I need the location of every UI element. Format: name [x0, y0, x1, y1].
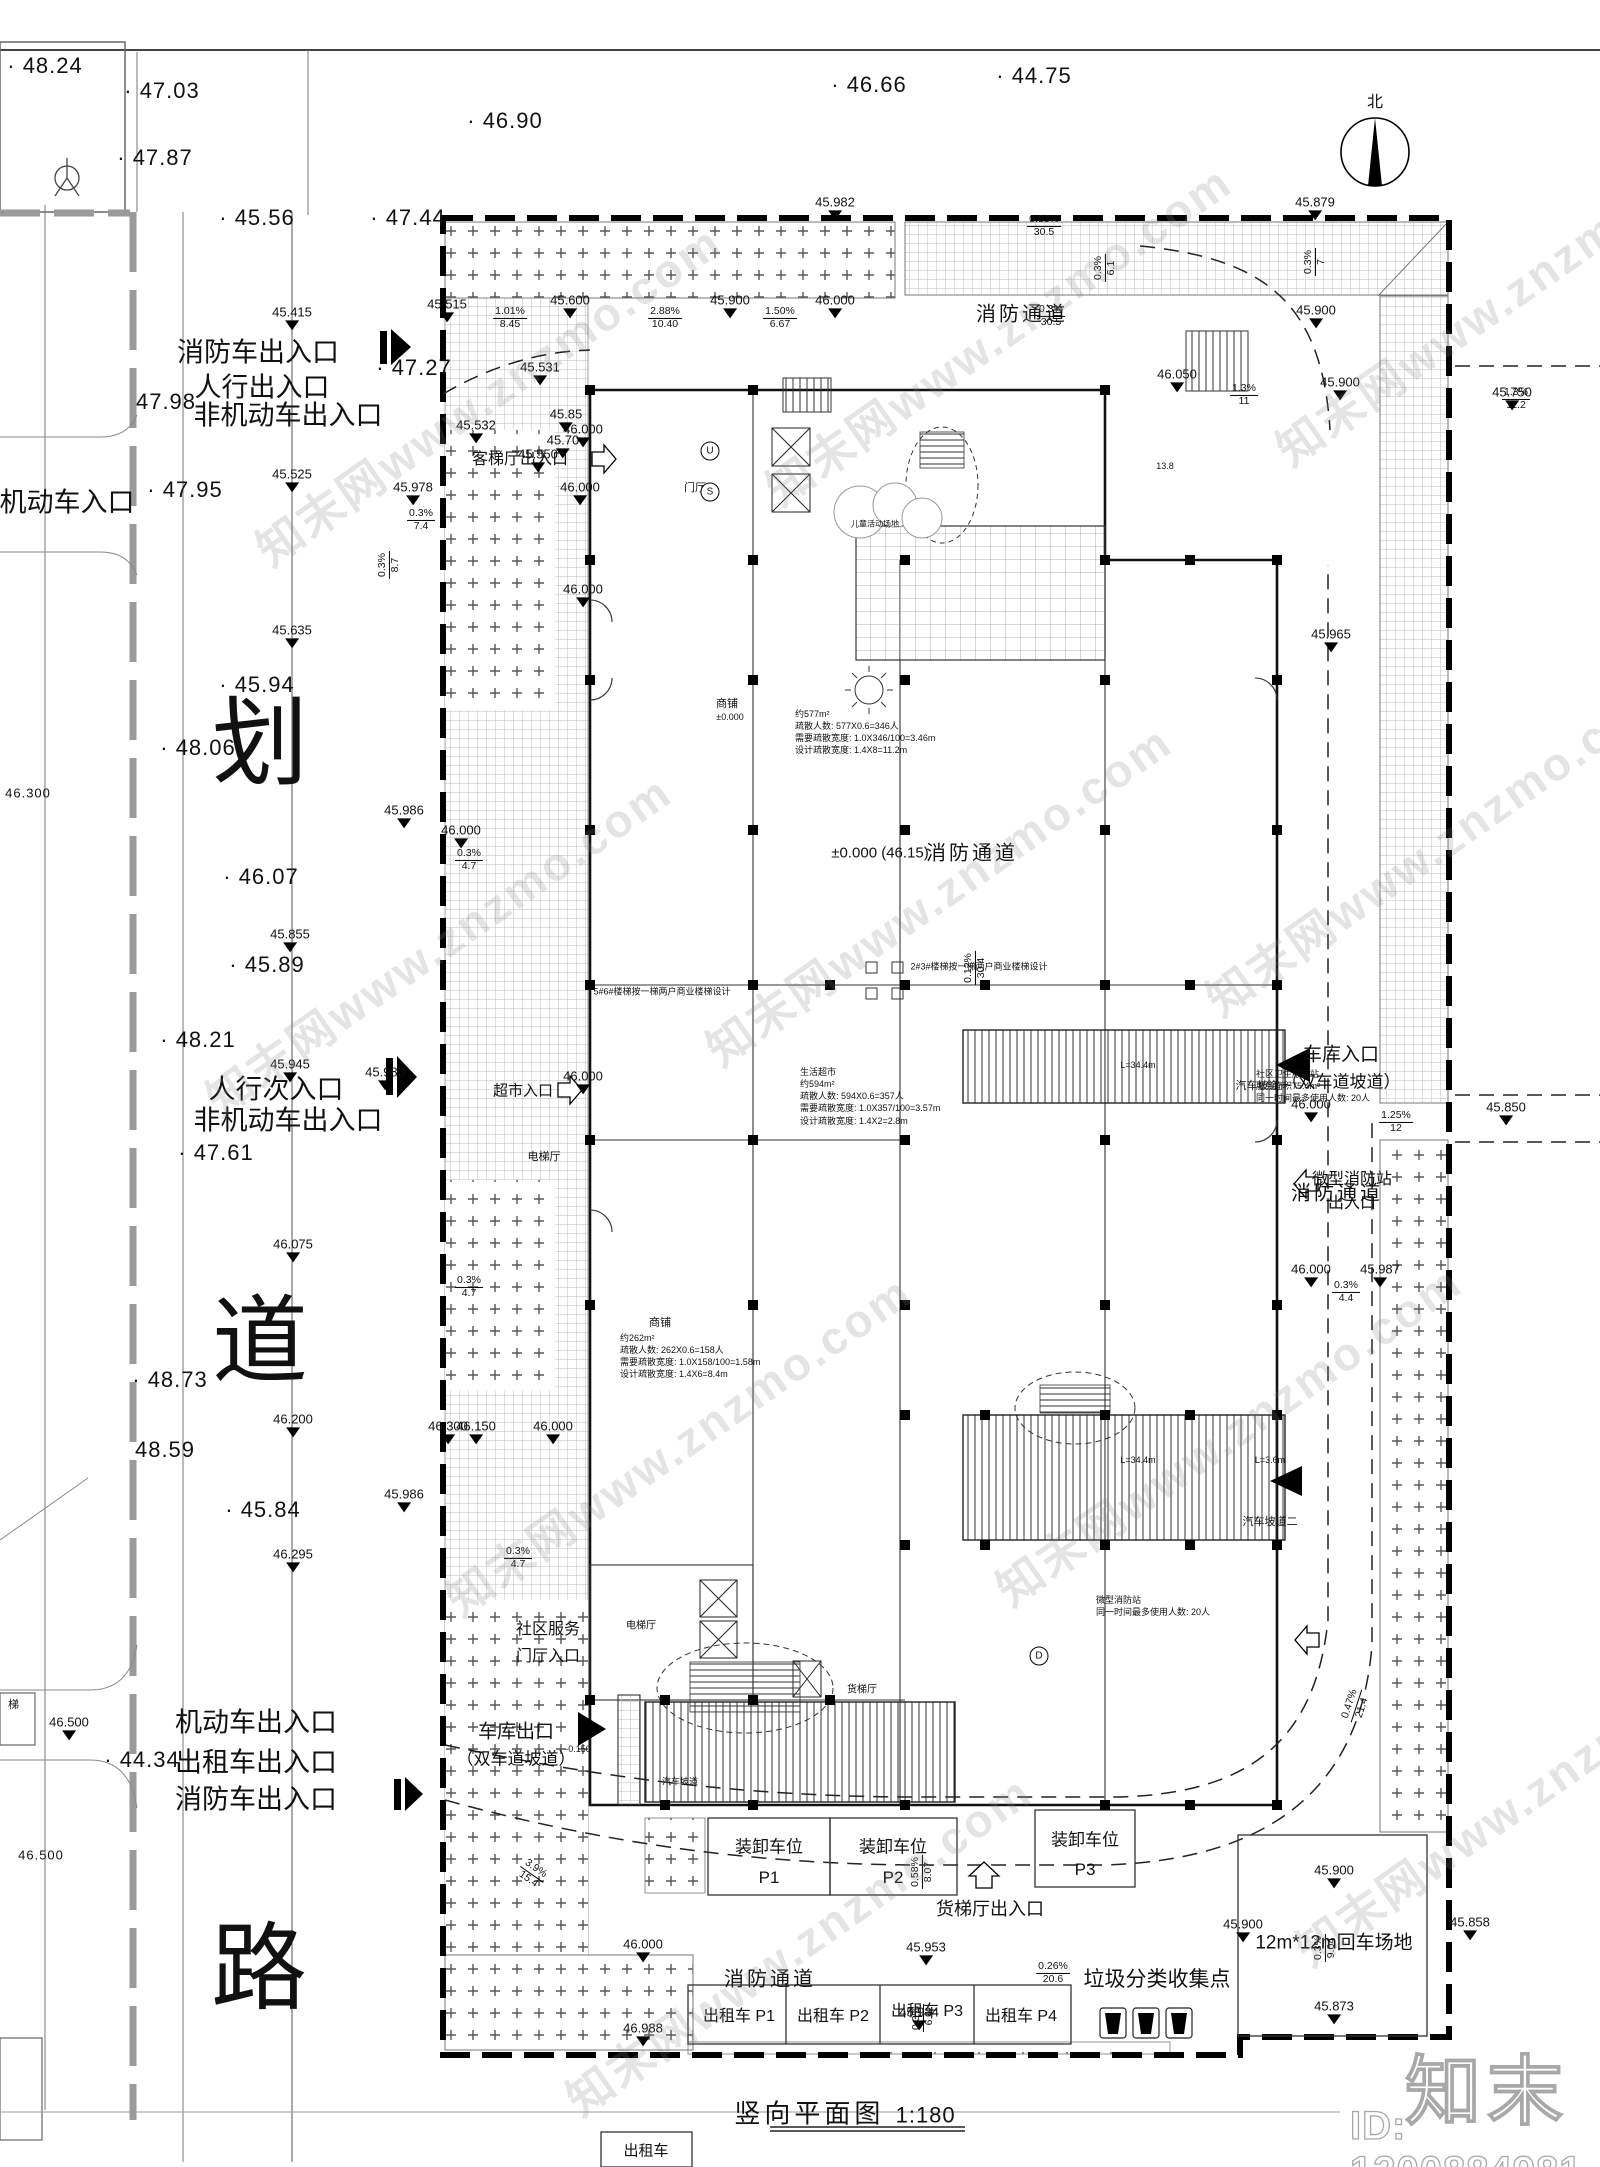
room-label: 客梯厅出入口 — [472, 445, 568, 469]
level-value: 45.900 — [710, 293, 750, 307]
level-value: 45.850 — [1486, 1100, 1526, 1114]
level-marker: 45.978 — [393, 480, 433, 505]
level-triangle-icon — [1327, 1878, 1341, 1888]
level-triangle-icon — [283, 942, 297, 952]
room-label: 垃圾分类收集点 — [1084, 1963, 1231, 1993]
level-marker: 45.953 — [906, 1940, 946, 1965]
level-triangle-icon — [1499, 1115, 1513, 1125]
taxi-bay-label: 出租车 P1 — [703, 2002, 775, 2026]
grid-axis-bubble: U — [701, 442, 720, 461]
slope-length: 8.45 — [500, 318, 520, 330]
slope-length: 6.1 — [1105, 261, 1117, 276]
level-marker: 45.980 — [365, 1065, 405, 1090]
note-line: 约577m² — [795, 708, 935, 720]
level-marker: 45.900 — [1314, 1863, 1354, 1888]
level-triangle-icon — [286, 1252, 300, 1262]
level-triangle-icon — [573, 495, 587, 505]
note-line: 设计疏散宽度: 1.4X8=11.2m — [795, 744, 935, 756]
spot-elevation: · 47.95 — [147, 477, 223, 503]
document-id: ID: 1200884981 — [1350, 2104, 1600, 2167]
spot-elevation: · 48.24 — [7, 53, 83, 79]
level-triangle-icon — [533, 375, 547, 385]
fire-lane-label: 消防通道 — [724, 1963, 816, 1992]
loading-bay-label: 装卸车位 — [859, 1833, 927, 1858]
room-label: L=3.6m — [1255, 1455, 1285, 1465]
spot-elevation: · 48.73 — [132, 1367, 208, 1393]
slope-length: 7 — [1315, 259, 1327, 265]
slope-annotation: 0.3%4.7 — [455, 1275, 483, 1299]
room-label: 社区服务 — [516, 1615, 580, 1639]
room-label: -0.150 — [565, 1744, 591, 1754]
level-triangle-icon — [469, 1434, 483, 1444]
room-label: ±0.000 — [716, 712, 743, 722]
note-line: 需要疏散宽度: 1.0X158/100=1.58m — [620, 1356, 760, 1368]
level-value: 46.000 — [563, 1069, 603, 1083]
room-label: 车库入口 — [1303, 1040, 1379, 1067]
slope-length: 8.7 — [389, 558, 401, 573]
level-marker: 45.900 — [710, 293, 750, 318]
level-marker: 45.900 — [1296, 303, 1336, 328]
note-line: 需要疏散宽度: 1.0X357/100=3.57m — [800, 1102, 940, 1114]
level-value: 45.900 — [1314, 1863, 1354, 1877]
room-label: 车库出口 — [478, 1717, 554, 1744]
level-triangle-icon — [1333, 390, 1347, 400]
loading-bay-code: P3 — [1075, 1860, 1096, 1880]
level-value: 45.858 — [1450, 1915, 1490, 1929]
level-value: 46.000 — [815, 293, 855, 307]
level-marker: 46.000 — [623, 1937, 663, 1962]
entrance-label: 非机动车出入口 — [194, 394, 383, 433]
note-line: 疏散人数: 262X0.6=158人 — [620, 1344, 760, 1356]
level-marker: 46.988 — [623, 2021, 663, 2046]
spot-elevation: · 45.89 — [229, 952, 305, 978]
note-block: 社区卫生服务站服务面积75.4m²同一时间最多使用人数: 20人 — [1256, 1068, 1370, 1104]
level-triangle-icon — [1309, 318, 1323, 328]
level-triangle-icon — [285, 638, 299, 648]
loading-bay-label: 装卸车位 — [735, 1833, 803, 1858]
level-marker: 46.000 — [563, 582, 603, 607]
level-value: 45.900 — [1296, 303, 1336, 317]
level-value: 45.980 — [365, 1065, 405, 1079]
level-value: 45.953 — [906, 1940, 946, 1954]
level-triangle-icon — [576, 1084, 590, 1094]
level-triangle-icon — [440, 312, 454, 322]
level-marker: 45.858 — [1450, 1915, 1490, 1940]
slope-annotation: 1.3%11 — [1230, 383, 1258, 407]
road-name-char: 道 — [212, 1264, 308, 1403]
slope-length: 8.07 — [922, 1862, 934, 1882]
level-value: 46.000 — [623, 1937, 663, 1951]
level-value: 45.855 — [270, 927, 310, 941]
room-label: ±0.000 (46.15) — [831, 845, 928, 862]
slope-annotation: 3.9%15.4 — [514, 1856, 551, 1892]
spot-elevation: · 44.75 — [996, 63, 1072, 89]
level-value: 45.986 — [384, 803, 424, 817]
slope-length: 7.4 — [414, 520, 429, 532]
watermark-text: 知末网www.znzmo.com — [981, 1247, 1473, 1619]
level-marker: 45.987 — [1360, 1262, 1400, 1287]
slope-length: 20.6 — [1043, 1973, 1063, 1985]
level-triangle-icon — [1324, 642, 1338, 652]
slope-length: 4.7 — [511, 1558, 526, 1570]
level-marker: 45.635 — [272, 623, 312, 648]
spot-elevation: 46.500 — [18, 1848, 64, 1863]
entrance-label: 出租车出入口 — [175, 1741, 337, 1780]
slope-annotation: 1.01%8.45 — [493, 306, 527, 330]
level-value: 46.000 — [560, 480, 600, 494]
fire-lane-label: 消防通道 — [926, 837, 1018, 866]
slope-annotation: 0.3%7.4 — [407, 508, 435, 532]
room-label: （双车道坡道） — [457, 1745, 576, 1770]
note-line: 疏散人数: 594X0.6=357人 — [800, 1090, 940, 1102]
slope-length: 4.4 — [1339, 1292, 1354, 1304]
note-line: 微型消防站 — [1096, 1594, 1210, 1606]
note-line: 设计疏散宽度: 1.4X6=8.4m — [620, 1368, 760, 1380]
level-marker: 45.986 — [384, 803, 424, 828]
level-value: 45.986 — [384, 1487, 424, 1501]
level-value: 45.873 — [1314, 1999, 1354, 2013]
level-value: 45.987 — [1360, 1262, 1400, 1276]
road-name-char: 划 — [212, 666, 308, 805]
level-triangle-icon — [469, 433, 483, 443]
level-triangle-icon — [723, 308, 737, 318]
spot-elevation: 46.300 — [5, 786, 51, 801]
spot-elevation: · 46.07 — [223, 864, 299, 890]
loading-bay-code: P2 — [883, 1868, 904, 1888]
level-marker: 46.000 — [533, 1419, 573, 1444]
level-value: 45.600 — [550, 293, 590, 307]
note-line: 同一时间最多使用人数: 20人 — [1096, 1606, 1210, 1618]
room-label: 汽车坡道二 — [1243, 1513, 1298, 1529]
watermark-text: 知末网www.znzmo.com — [1281, 1607, 1600, 1979]
note-block: 生活超市约594m²疏散人数: 594X0.6=357人需要疏散宽度: 1.0X… — [800, 1066, 940, 1127]
level-triangle-icon — [563, 308, 577, 318]
room-label: 2#3#楼梯按一梯两户商业楼梯设计 — [910, 960, 1047, 973]
level-triangle-icon — [1236, 1932, 1250, 1942]
grid-axis-bubble: S — [701, 483, 720, 502]
level-triangle-icon — [546, 1434, 560, 1444]
entrance-label: 机动车入口 — [0, 481, 135, 520]
slope-length: 11.2 — [1506, 399, 1526, 411]
room-label: 汽车坡道 — [662, 1775, 698, 1788]
level-triangle-icon — [576, 437, 590, 447]
level-triangle-icon — [919, 1955, 933, 1965]
slope-annotation: 1.50%6.67 — [763, 306, 797, 330]
spot-elevation: · 47.27 — [376, 355, 452, 381]
room-label: 5#6#楼梯按一梯两户商业楼梯设计 — [593, 985, 730, 998]
level-value: 46.200 — [273, 1412, 313, 1426]
level-triangle-icon — [1373, 1277, 1387, 1287]
level-triangle-icon — [1304, 1112, 1318, 1122]
spot-elevation: · 48.21 — [160, 1027, 236, 1053]
entrance-label: 消防车出入口 — [177, 331, 339, 370]
loading-bay-code: P1 — [759, 1868, 780, 1888]
spot-elevation: 梯 — [8, 1696, 20, 1712]
taxi-bay-label: 出租车 P3 — [891, 1997, 963, 2021]
slope-annotation: 0.3%4.4 — [1332, 1280, 1360, 1304]
level-marker: 45.986 — [384, 1487, 424, 1512]
level-value: 46.000 — [563, 422, 603, 436]
level-value: 46.500 — [49, 1715, 89, 1729]
entrance-label: 消防车出入口 — [175, 1778, 337, 1817]
level-value: 45.515 — [427, 297, 467, 311]
level-value: 45.532 — [456, 418, 496, 432]
level-value: 45.525 — [272, 467, 312, 481]
level-triangle-icon — [286, 1562, 300, 1572]
slope-annotation: 0.33%30.5 — [1027, 214, 1061, 238]
slope-annotation: 0.3%7 — [1303, 248, 1327, 276]
room-label: 商铺 — [716, 695, 738, 711]
room-label: 货梯厅出入口 — [936, 1895, 1044, 1921]
note-line: 设计疏散宽度: 1.4X2=2.8m — [800, 1115, 940, 1127]
level-triangle-icon — [1327, 2014, 1341, 2024]
level-value: 45.978 — [393, 480, 433, 494]
level-triangle-icon — [1304, 1277, 1318, 1287]
level-value: 45.85 — [550, 407, 583, 421]
note-block: 约577m²疏散人数: 577X0.6=346人需要疏散宽度: 1.0X346/… — [795, 708, 935, 757]
level-marker: 45.879 — [1295, 195, 1335, 220]
level-marker: 46.500 — [49, 1715, 89, 1740]
drawing-title: 竖向平面图 1:180 — [734, 2094, 955, 2131]
level-value: 46.150 — [456, 1419, 496, 1433]
level-triangle-icon — [285, 482, 299, 492]
room-label: 门厅入口 — [516, 1642, 580, 1666]
watermark-text: 知末网www.znzmo.com — [431, 1257, 923, 1629]
level-marker: 46.000 — [1291, 1262, 1331, 1287]
taxi-bay-label: 出租车 P2 — [797, 2002, 869, 2026]
room-label: L=34.4m — [1120, 1060, 1155, 1070]
fire-lane-label: 消防通道 — [976, 298, 1068, 327]
level-marker: 46.150 — [456, 1419, 496, 1444]
level-value: 45.900 — [1320, 375, 1360, 389]
level-value: 46.050 — [1157, 367, 1197, 381]
level-marker: 45.850 — [1486, 1100, 1526, 1125]
grid-axis-bubble: D — [1030, 1647, 1049, 1666]
watermark-text: 知末网www.znzmo.com — [1191, 657, 1600, 1029]
level-value: 46.000 — [533, 1419, 573, 1433]
level-triangle-icon — [636, 1952, 650, 1962]
level-value: 45.635 — [272, 623, 312, 637]
slope-length: 4.7 — [462, 1287, 477, 1299]
level-value: 45.879 — [1295, 195, 1335, 209]
level-value: 46.000 — [563, 582, 603, 596]
note-line: 同一时间最多使用人数: 20人 — [1256, 1092, 1370, 1104]
level-triangle-icon — [285, 320, 299, 330]
level-marker: 45.525 — [272, 467, 312, 492]
level-marker: 45.600 — [550, 293, 590, 318]
level-marker: 46.295 — [273, 1547, 313, 1572]
level-value: 46.075 — [273, 1237, 313, 1251]
slope-annotation: 0.3%8.7 — [377, 551, 401, 579]
entrance-label: 机动车出入口 — [175, 1701, 337, 1740]
level-marker: 46.075 — [273, 1237, 313, 1262]
slope-annotation: 0.3%6.1 — [1093, 254, 1117, 282]
level-marker: 45.531 — [520, 360, 560, 385]
level-triangle-icon — [828, 210, 842, 220]
level-value: 45.965 — [1311, 627, 1351, 641]
level-triangle-icon — [286, 1427, 300, 1437]
level-value: 46.000 — [441, 823, 481, 837]
road-name-char: 路 — [211, 1891, 307, 2030]
note-block: 约262m²疏散人数: 262X0.6=158人需要疏散宽度: 1.0X158/… — [620, 1332, 760, 1381]
spot-elevation: · 47.61 — [178, 1140, 254, 1166]
slope-length: 10.40 — [652, 318, 678, 330]
room-label: 12m*12m回车场地 — [1255, 1928, 1412, 1955]
title-scale: 1:180 — [896, 2103, 956, 2128]
slope-length: 30.5 — [1034, 226, 1054, 238]
room-label: 商铺 — [649, 1314, 671, 1330]
taxi-stand-label: 出租车 — [623, 2140, 668, 2161]
level-triangle-icon — [378, 1080, 392, 1090]
level-marker: 46.200 — [273, 1412, 313, 1437]
level-marker: 46.000 — [563, 1069, 603, 1094]
title-text: 竖向平面图 — [734, 2099, 884, 2129]
level-marker: 45.415 — [272, 305, 312, 330]
level-value: 45.531 — [520, 360, 560, 374]
slope-annotation: 0.58%8.07 — [910, 1855, 934, 1889]
room-label: 儿童活动场地 — [851, 519, 899, 530]
taxi-bay-label: 出租车 P4 — [985, 2002, 1057, 2026]
note-line: 疏散人数: 577X0.6=346人 — [795, 720, 935, 732]
level-value: 45.415 — [272, 305, 312, 319]
level-marker: 45.900 — [1320, 375, 1360, 400]
level-triangle-icon — [1170, 382, 1184, 392]
room-label: 超市入口 — [493, 1080, 553, 1101]
level-triangle-icon — [1463, 1930, 1477, 1940]
note-line: 约594m² — [800, 1078, 940, 1090]
spot-elevation: · 45.84 — [225, 1497, 301, 1523]
slope-length: 11 — [1239, 395, 1250, 407]
level-marker: 46.000 — [815, 293, 855, 318]
level-triangle-icon — [397, 1502, 411, 1512]
note-line: 需要疏散宽度: 1.0X346/100=3.46m — [795, 732, 935, 744]
watermark-text: 知末网www.znzmo.com — [691, 707, 1183, 1079]
site-plan-drawing: · 48.24· 47.03· 47.87· 45.56· 46.90· 46.… — [0, 0, 1600, 2167]
north-label: 北 — [1367, 88, 1383, 112]
loading-bay-label: 装卸车位 — [1051, 1826, 1119, 1851]
level-marker: 45.873 — [1314, 1999, 1354, 2024]
level-marker: 46.000 — [441, 823, 481, 848]
spot-elevation: 48.59 — [135, 1437, 195, 1463]
room-label: 电梯厅 — [528, 1148, 561, 1164]
room-label: 微型消防站 — [1312, 1165, 1392, 1189]
note-block: 微型消防站同一时间最多使用人数: 20人 — [1096, 1594, 1210, 1618]
slope-annotation: 1.25%12 — [1379, 1110, 1413, 1134]
slope-length: 12 — [1390, 1122, 1402, 1134]
note-line: 服务面积75.4m² — [1256, 1080, 1370, 1092]
note-line: 约262m² — [620, 1332, 760, 1344]
level-triangle-icon — [441, 1434, 455, 1444]
level-triangle-icon — [406, 495, 420, 505]
spot-elevation: · 47.44 — [370, 205, 446, 231]
level-value: 46.000 — [1291, 1262, 1331, 1276]
level-marker: 46.000 — [563, 422, 603, 447]
spot-elevation: · 47.03 — [124, 78, 200, 104]
level-triangle-icon — [397, 818, 411, 828]
level-value: 46.295 — [273, 1547, 313, 1561]
level-triangle-icon — [62, 1730, 76, 1740]
level-marker: 45.965 — [1311, 627, 1351, 652]
level-value: 45.982 — [815, 195, 855, 209]
level-triangle-icon — [636, 2036, 650, 2046]
room-label: 货梯厅 — [847, 1681, 877, 1696]
spot-elevation: · 46.66 — [831, 72, 907, 98]
spot-elevation: · 45.56 — [219, 205, 295, 231]
slope-annotation: 1.3%11.2 — [1502, 387, 1530, 411]
level-marker: 45.532 — [456, 418, 496, 443]
slope-annotation: 0.3%4.7 — [455, 848, 483, 872]
level-marker: 45.855 — [270, 927, 310, 952]
level-marker: 45.515 — [427, 297, 467, 322]
level-marker: 46.050 — [1157, 367, 1197, 392]
level-marker: 45.982 — [815, 195, 855, 220]
watermark-text: 知末网www.znzmo.com — [1261, 107, 1600, 479]
spot-elevation: · 44.34 — [104, 1747, 180, 1773]
spot-elevation: · 46.90 — [467, 108, 543, 134]
slope-length: 6.67 — [770, 318, 790, 330]
room-label: 电梯厅 — [626, 1617, 656, 1632]
level-marker: 46.000 — [560, 480, 600, 505]
room-label: L=34.4m — [1120, 1455, 1155, 1465]
slope-annotation: 0.47%21.4 — [1339, 1686, 1372, 1726]
room-label: 13.8 — [1156, 461, 1174, 471]
labels-layer: · 48.24· 47.03· 47.87· 45.56· 46.90· 46.… — [0, 0, 1600, 2167]
level-triangle-icon — [1308, 210, 1322, 220]
entrance-label: 非机动车出入口 — [194, 1099, 383, 1138]
spot-elevation: 47.98 — [136, 389, 196, 415]
slope-annotation: 2.88%10.40 — [648, 306, 682, 330]
spot-elevation: · 47.87 — [117, 145, 193, 171]
slope-annotation: 0.3%4.7 — [504, 1546, 532, 1570]
slope-length: 4.7 — [462, 860, 477, 872]
level-triangle-icon — [828, 308, 842, 318]
level-triangle-icon — [576, 597, 590, 607]
note-line: 生活超市 — [800, 1066, 940, 1078]
note-line: 社区卫生服务站 — [1256, 1068, 1370, 1080]
slope-annotation: 0.26%20.6 — [1036, 1961, 1070, 1985]
room-label: 出入口 — [1328, 1189, 1376, 1213]
level-value: 46.988 — [623, 2021, 663, 2035]
